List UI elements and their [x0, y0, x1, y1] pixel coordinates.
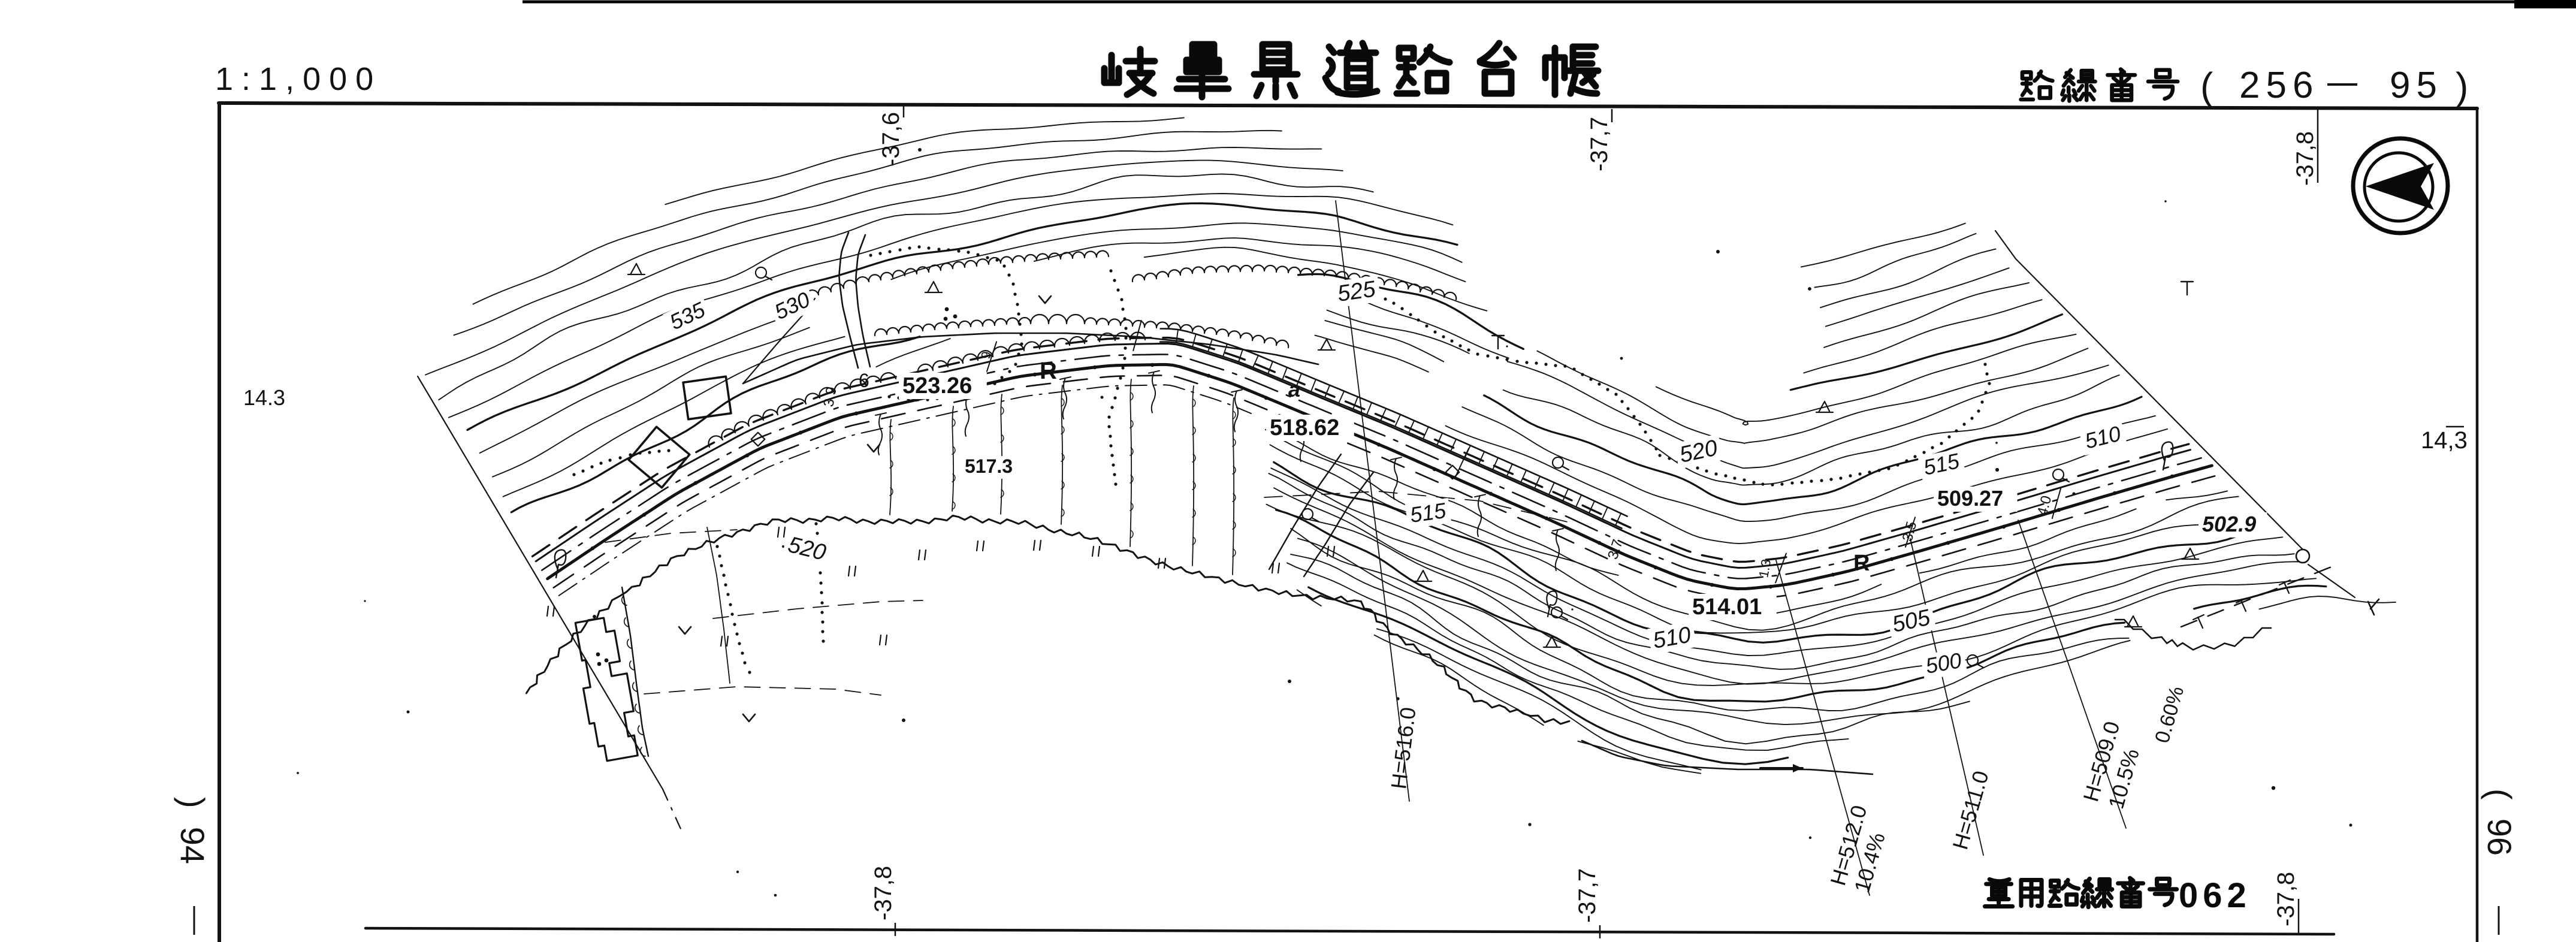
svg-text:502.9: 502.9 [2202, 512, 2256, 536]
svg-text:): ) [2456, 65, 2468, 108]
svg-text:R: R [1853, 551, 1870, 576]
svg-text:515: 515 [1408, 498, 1448, 527]
svg-text:14,3: 14,3 [2421, 427, 2468, 454]
svg-text:062: 062 [2179, 876, 2251, 915]
svg-text:514.01: 514.01 [1692, 594, 1762, 620]
svg-text:a: a [1288, 377, 1300, 401]
svg-text:14.3: 14.3 [243, 385, 285, 410]
svg-text:1:1,000: 1:1,000 [215, 61, 382, 97]
svg-text:-37,8: -37,8 [870, 866, 896, 920]
svg-text:1.3: 1.3 [1756, 558, 1774, 578]
svg-text:518.62: 518.62 [1270, 415, 1339, 440]
svg-text:) 94: ) 94 [174, 797, 212, 864]
svg-text:-37,8: -37,8 [2273, 872, 2299, 926]
svg-text:-37,7: -37,7 [1586, 117, 1612, 171]
svg-text:(: ( [2200, 65, 2213, 108]
svg-text:3.9: 3.9 [820, 385, 839, 408]
svg-text:256: 256 [2239, 65, 2319, 106]
svg-text:517.3: 517.3 [965, 455, 1013, 477]
svg-text:523.26: 523.26 [902, 373, 972, 398]
svg-text:( 96: ( 96 [2481, 789, 2518, 856]
svg-text:509.27: 509.27 [1937, 486, 2003, 511]
svg-text:R: R [1040, 358, 1057, 384]
svg-text:-37,8: -37,8 [2292, 131, 2318, 186]
svg-text:6: 6 [859, 370, 869, 391]
svg-text:525: 525 [1336, 276, 1377, 307]
svg-text:-37,7: -37,7 [1574, 868, 1600, 923]
svg-text:95: 95 [2390, 65, 2443, 106]
svg-text:-37,6: -37,6 [878, 112, 904, 167]
